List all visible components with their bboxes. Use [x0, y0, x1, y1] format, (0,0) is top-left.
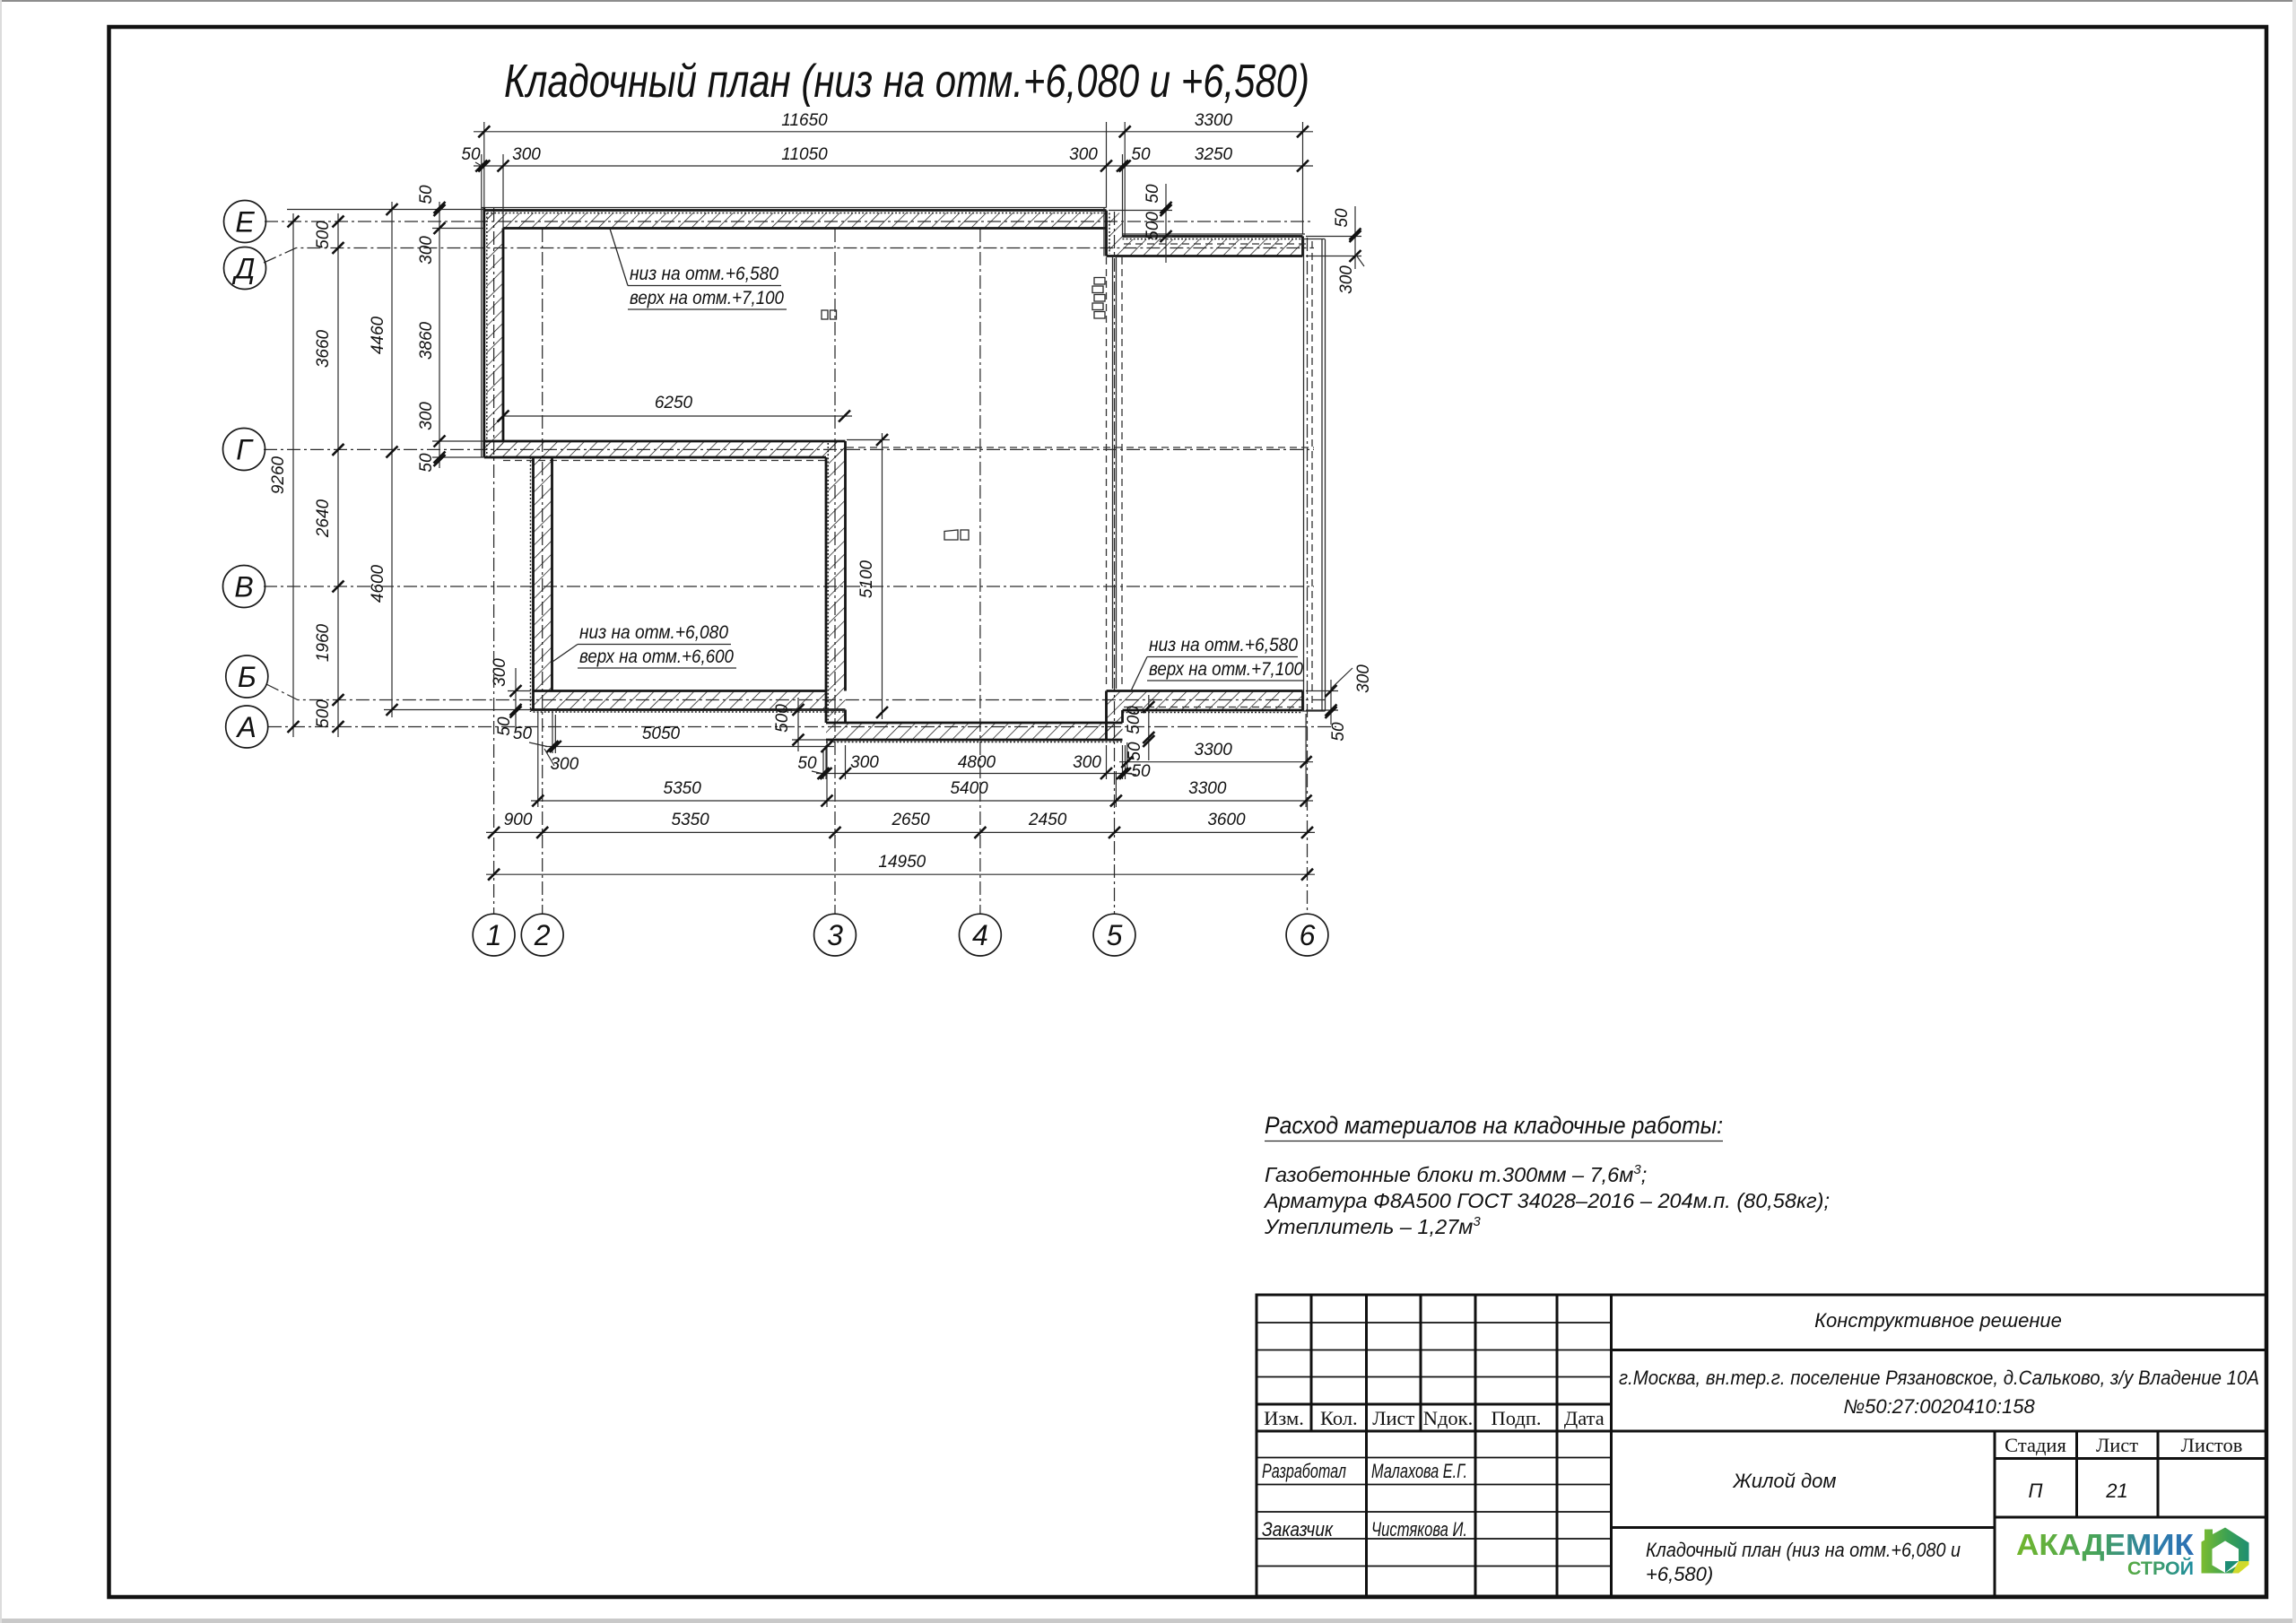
svg-text:300: 300 — [417, 402, 436, 430]
svg-text:Б: Б — [238, 661, 257, 693]
svg-text:50: 50 — [797, 754, 817, 773]
svg-text:низ на отм.+6,580: низ на отм.+6,580 — [630, 264, 778, 284]
svg-text:Арматура Ф8А500 ГОСТ 34028–201: Арматура Ф8А500 ГОСТ 34028–2016 – 204м.п… — [1263, 1189, 1830, 1212]
svg-text:6: 6 — [1300, 919, 1316, 951]
svg-text:300: 300 — [1069, 145, 1098, 164]
svg-text:А: А — [236, 711, 257, 743]
svg-text:Газобетонные блоки т.300мм – 7: Газобетонные блоки т.300мм – 7,6м3; — [1265, 1162, 1647, 1186]
svg-text:№50:27:0020410:158: №50:27:0020410:158 — [1843, 1395, 2035, 1418]
svg-text:Стадия: Стадия — [2005, 1434, 2066, 1456]
svg-text:50: 50 — [1126, 742, 1144, 761]
svg-text:г.Москва, вн.тер.г. поселение: г.Москва, вн.тер.г. поселение Рязановско… — [1619, 1367, 2259, 1389]
svg-text:Чистякова И.: Чистякова И. — [1371, 1518, 1467, 1541]
svg-text:Подп.: Подп. — [1492, 1407, 1542, 1429]
svg-text:3600: 3600 — [1207, 811, 1246, 829]
svg-text:низ на отм.+6,080: низ на отм.+6,080 — [579, 622, 728, 643]
svg-text:АКАДЕМИК: АКАДЕМИК — [2016, 1528, 2195, 1561]
svg-text:Кол.: Кол. — [1320, 1407, 1358, 1429]
svg-text:3300: 3300 — [1195, 111, 1233, 130]
svg-text:5: 5 — [1107, 919, 1123, 951]
svg-text:3300: 3300 — [1188, 779, 1227, 798]
svg-text:500: 500 — [773, 704, 792, 733]
svg-text:500: 500 — [1144, 212, 1162, 240]
svg-text:Утеплитель – 1,27м3: Утеплитель – 1,27м3 — [1264, 1214, 1481, 1238]
svg-text:2640: 2640 — [314, 499, 333, 538]
svg-text:+6,580): +6,580) — [1646, 1563, 1713, 1585]
svg-text:300: 300 — [850, 753, 879, 772]
svg-text:Разработал: Разработал — [1262, 1460, 1346, 1482]
svg-text:300: 300 — [550, 755, 578, 774]
svg-text:низ на отм.+6,580: низ на отм.+6,580 — [1149, 635, 1298, 655]
svg-text:4600: 4600 — [369, 564, 387, 603]
svg-text:500: 500 — [314, 699, 333, 728]
svg-text:1960: 1960 — [314, 623, 333, 662]
svg-text:3660: 3660 — [314, 329, 333, 368]
svg-text:Дата: Дата — [1564, 1407, 1605, 1429]
svg-text:500: 500 — [314, 221, 333, 249]
svg-text:5050: 5050 — [642, 725, 681, 743]
svg-text:3250: 3250 — [1195, 145, 1233, 164]
svg-text:3: 3 — [827, 919, 843, 951]
svg-text:14950: 14950 — [878, 853, 926, 872]
svg-text:Лист: Лист — [2096, 1434, 2138, 1456]
svg-text:верх на отм.+7,100: верх на отм.+7,100 — [1149, 659, 1303, 680]
svg-text:300: 300 — [1337, 265, 1356, 294]
svg-text:6250: 6250 — [655, 394, 693, 412]
svg-text:50: 50 — [1144, 184, 1162, 204]
svg-text:50: 50 — [417, 185, 436, 204]
svg-text:Заказчик: Заказчик — [1262, 1518, 1334, 1541]
svg-text:50: 50 — [1333, 208, 1352, 228]
svg-text:Листов: Листов — [2181, 1434, 2243, 1456]
svg-text:5350: 5350 — [671, 811, 709, 829]
svg-text:4460: 4460 — [369, 316, 387, 354]
svg-text:300: 300 — [491, 658, 509, 687]
svg-text:1: 1 — [486, 919, 502, 951]
svg-text:50: 50 — [417, 453, 436, 473]
svg-text:9260: 9260 — [269, 456, 288, 494]
svg-text:4: 4 — [972, 919, 988, 951]
svg-text:3860: 3860 — [417, 321, 436, 360]
svg-text:11650: 11650 — [781, 111, 828, 130]
svg-text:Nдок.: Nдок. — [1423, 1407, 1474, 1429]
svg-text:300: 300 — [417, 236, 436, 265]
svg-text:Расход материалов на кладочные: Расход материалов на кладочные работы: — [1265, 1112, 1723, 1139]
svg-text:П: П — [2029, 1480, 2043, 1502]
svg-text:Малахова Е.Г.: Малахова Е.Г. — [1371, 1460, 1467, 1482]
svg-text:Конструктивное решение: Конструктивное решение — [1814, 1309, 2062, 1332]
svg-text:900: 900 — [504, 811, 533, 829]
svg-text:50: 50 — [1329, 722, 1348, 742]
svg-text:4800: 4800 — [958, 753, 996, 772]
svg-text:2650: 2650 — [891, 811, 930, 829]
svg-text:50: 50 — [1131, 145, 1151, 164]
svg-text:верх на отм.+7,100: верх на отм.+7,100 — [630, 288, 784, 308]
svg-text:50: 50 — [1131, 762, 1151, 781]
svg-text:50: 50 — [461, 145, 481, 164]
svg-text:2450: 2450 — [1028, 811, 1067, 829]
svg-text:11050: 11050 — [781, 145, 828, 164]
svg-text:В: В — [234, 571, 253, 603]
svg-text:Е: Е — [235, 206, 255, 239]
svg-text:Лист: Лист — [1372, 1407, 1414, 1429]
svg-text:Жилой дом: Жилой дом — [1733, 1470, 1837, 1492]
svg-text:Г: Г — [236, 434, 254, 466]
svg-text:3300: 3300 — [1195, 741, 1233, 759]
svg-text:Кладочный план (низ на отм.+6,: Кладочный план (низ на отм.+6,080 и — [1646, 1539, 1961, 1561]
svg-text:2: 2 — [534, 919, 551, 951]
svg-text:300: 300 — [1073, 753, 1101, 772]
svg-text:5350: 5350 — [664, 779, 702, 798]
svg-text:Кладочный план (низ на отм.+6,: Кладочный план (низ на отм.+6,080 и +6,5… — [504, 56, 1309, 108]
svg-text:верх на отм.+6,600: верх на отм.+6,600 — [579, 647, 734, 667]
svg-text:300: 300 — [1354, 664, 1373, 693]
svg-text:300: 300 — [512, 145, 541, 164]
svg-text:СТРОЙ: СТРОЙ — [2127, 1558, 2194, 1579]
svg-text:500: 500 — [1125, 706, 1144, 734]
svg-text:5100: 5100 — [857, 560, 876, 598]
svg-text:Д: Д — [232, 253, 256, 285]
svg-text:5400: 5400 — [950, 779, 988, 798]
svg-text:21: 21 — [2105, 1480, 2127, 1502]
svg-text:50: 50 — [495, 716, 514, 736]
svg-text:50: 50 — [513, 725, 533, 743]
svg-text:Изм.: Изм. — [1264, 1407, 1304, 1429]
